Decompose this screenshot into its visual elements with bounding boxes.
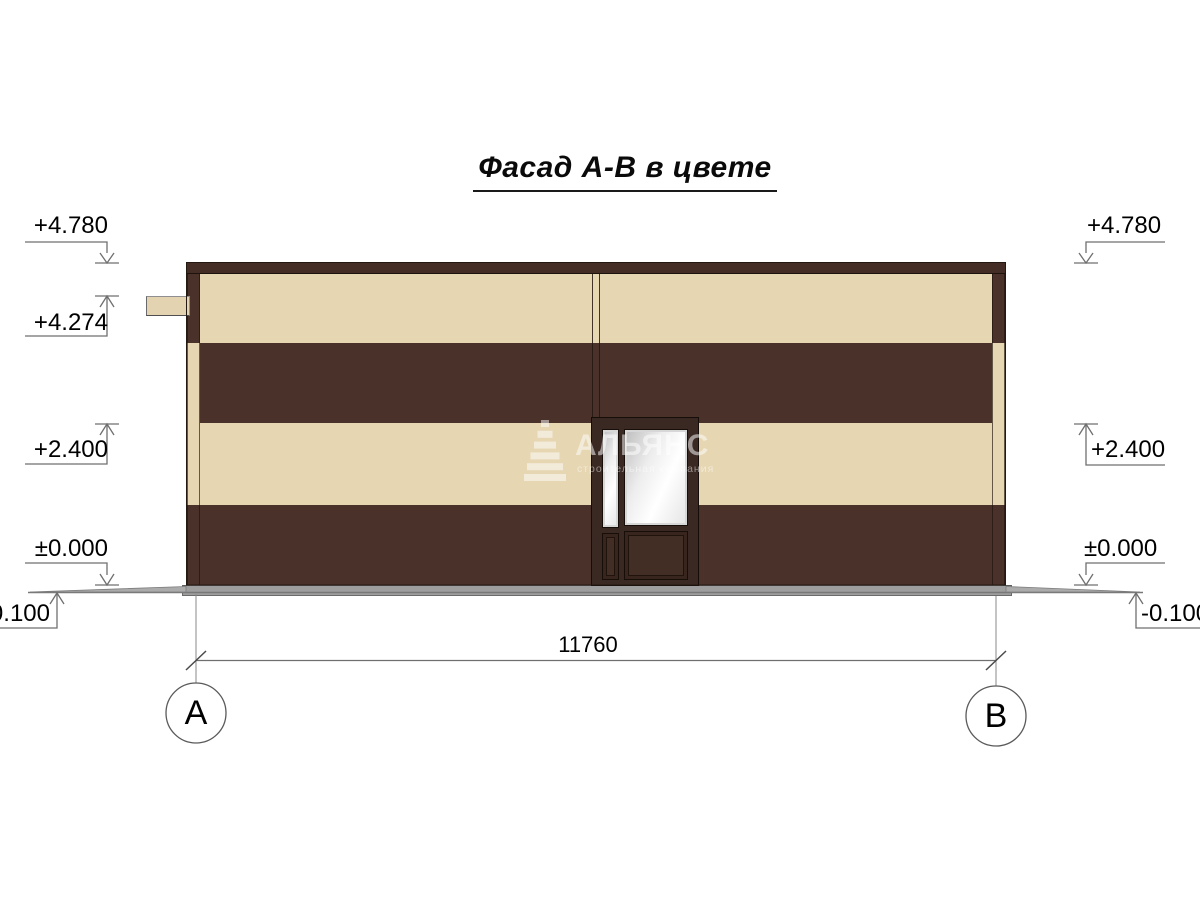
axis-label-a: А <box>166 694 226 733</box>
level-label-left-4274: +4.274 <box>20 309 108 337</box>
level-marker-left-4780 <box>25 242 119 263</box>
axis-label-b: В <box>966 697 1026 736</box>
level-label-left-0000: ±0.000 <box>20 535 108 563</box>
drawing-canvas: Фасад А-В в цвете <box>0 0 1200 900</box>
annotation-linework <box>0 0 1200 900</box>
level-marker-right-4780 <box>1074 242 1165 263</box>
dimension-value: 11760 <box>508 632 668 658</box>
level-marker-left-0000 <box>25 563 119 585</box>
level-label-right-0000: ±0.000 <box>1084 535 1157 563</box>
level-marker-right-0000 <box>1074 563 1165 585</box>
level-label-left-2400: +2.400 <box>20 436 108 464</box>
level-label-left-4780: +4.780 <box>20 212 108 240</box>
level-label-left-minus0100: -0.100 <box>0 600 50 628</box>
building-outline <box>187 263 1006 586</box>
level-label-right-2400: +2.400 <box>1091 436 1165 464</box>
level-label-right-4780: +4.780 <box>1087 212 1161 240</box>
level-label-right-minus0100: -0.100 <box>1141 600 1200 628</box>
ground-slope-wedges <box>30 587 1140 593</box>
